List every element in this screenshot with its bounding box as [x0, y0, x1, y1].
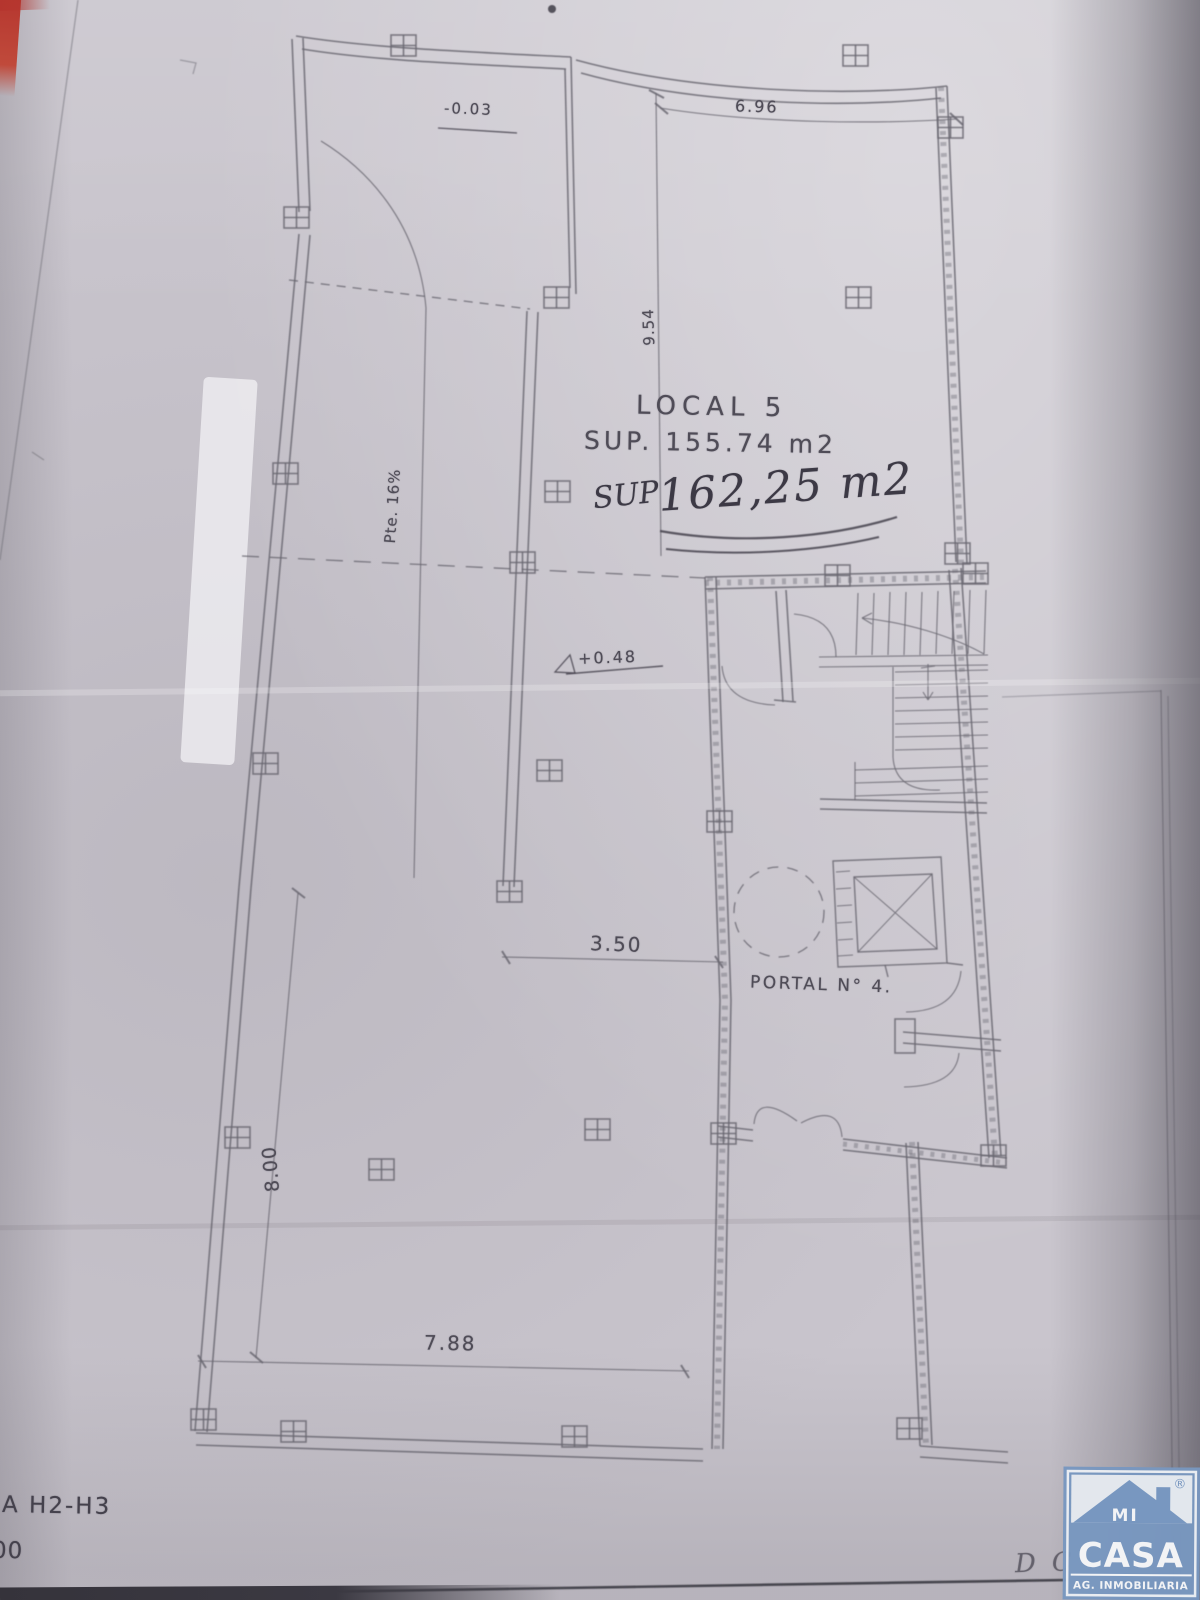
- ramp-corridor-walls: [239, 234, 538, 888]
- portal-bottom-walls: [718, 1126, 1008, 1463]
- handwritten-underline-1: [660, 517, 897, 538]
- turning-circle-dashed: [734, 867, 824, 957]
- sheet-border-lines: [0, 0, 1181, 1600]
- dim-top-width: 6.96: [735, 96, 779, 116]
- smudge-mark: [548, 5, 556, 13]
- column-symbols: [191, 35, 1006, 1447]
- registered-mark: ®: [1173, 1477, 1186, 1492]
- dim-mid-width: 3.50: [590, 931, 643, 957]
- level-mid: +0.48: [578, 647, 638, 668]
- logo-tagline: AG. INMOBILIARIA: [1073, 1580, 1189, 1593]
- level-top: -0.03: [444, 99, 493, 119]
- dim-right-height: 9.54: [639, 308, 658, 346]
- elevator: [833, 857, 947, 977]
- entrance-double-door: [754, 1107, 797, 1124]
- logo-divider: [1071, 1575, 1192, 1576]
- room-title: LOCAL 5: [636, 391, 788, 424]
- top-left-room-walls: [292, 36, 576, 294]
- room-area: SUP. 155.74 m2: [584, 426, 837, 459]
- titleblock-line1: A H2-H3: [2, 1492, 112, 1520]
- dim-left-height: 8.00: [258, 1145, 284, 1193]
- ramp-edge-line: [414, 308, 426, 878]
- agency-logo: ® MI CASA AG. INMOBILIARIA: [1063, 1467, 1200, 1600]
- floorplan-photo: LOCAL 5 SUP. 155.74 m2 -0.03 +0.48 6.96 …: [0, 0, 1200, 1600]
- floorplan-drawing: [0, 0, 1200, 1600]
- logo-word-casa: CASA: [1078, 1536, 1184, 1577]
- handwritten-underline-2: [666, 537, 879, 553]
- logo-word-mi: MI: [1111, 1506, 1138, 1526]
- dim-bottom-width: 7.88: [424, 1331, 477, 1356]
- titleblock-line2: 00: [0, 1538, 24, 1565]
- dashed-lines: [242, 280, 824, 957]
- handwritten-sup: SUP: [591, 475, 660, 517]
